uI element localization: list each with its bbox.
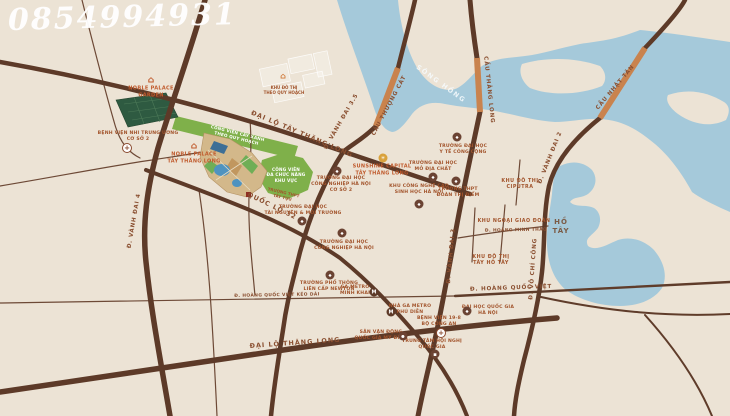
map-stage: 0854994931 ĐẠI LỘ TÂY THĂNG LONGĐ. VÀNH … bbox=[0, 0, 730, 416]
road-quoc-lo-32 bbox=[146, 170, 467, 416]
bridge-thang-long bbox=[477, 58, 480, 112]
road-vanh-dai-4 bbox=[145, 0, 205, 416]
masterplan-gate-marker bbox=[246, 192, 251, 197]
watermark-phone-number: 0854994931 bbox=[8, 0, 238, 38]
park-multifunction bbox=[258, 153, 313, 199]
map-canvas bbox=[0, 0, 730, 416]
river-island bbox=[520, 59, 605, 93]
road-vanh-dai-3 bbox=[418, 0, 480, 416]
blueprint-area bbox=[259, 51, 336, 105]
west-lake-shape bbox=[547, 163, 665, 306]
